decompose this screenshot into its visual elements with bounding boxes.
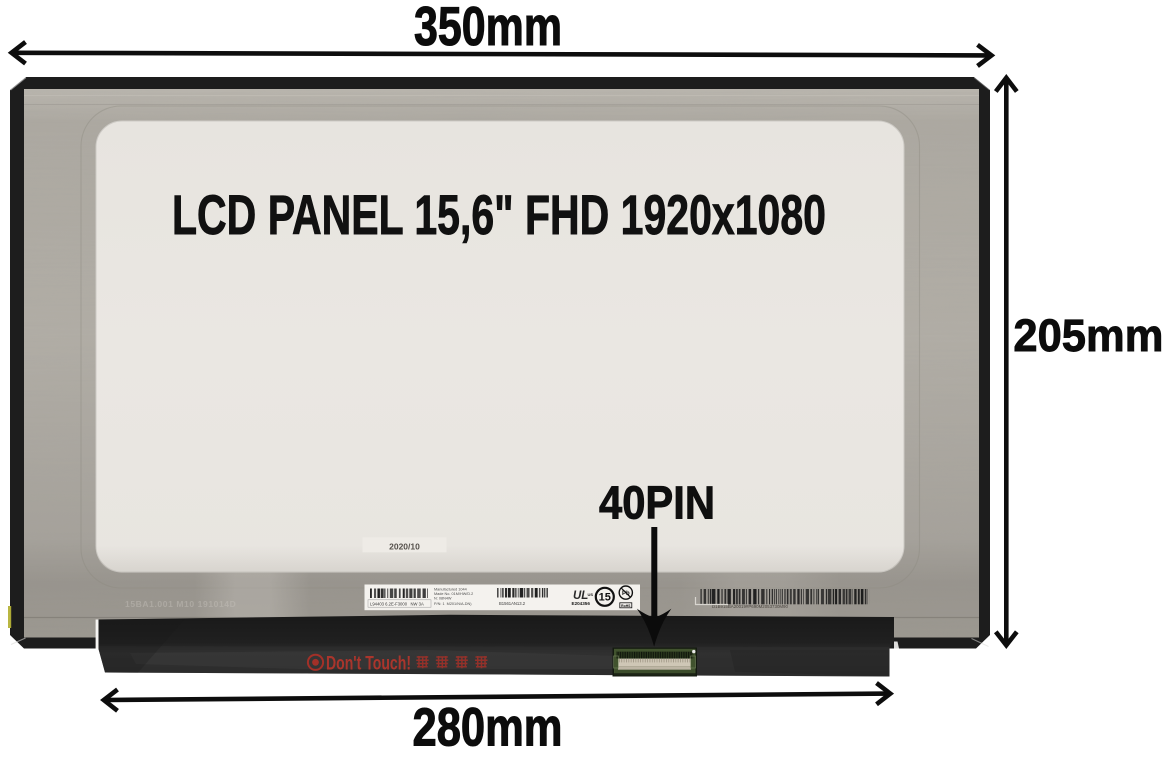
- svg-text:40PIN: 40PIN: [599, 477, 715, 529]
- svg-text:Made No. 01M/HW/D.2: Made No. 01M/HW/D.2: [434, 592, 473, 596]
- svg-text:B1561AN13.2: B1561AN13.2: [499, 601, 526, 606]
- svg-text:N: 08N4W: N: 08N4W: [434, 597, 452, 601]
- svg-text:350mm: 350mm: [414, 0, 562, 57]
- svg-text:2020/10: 2020/10: [389, 542, 420, 552]
- svg-text:RoHS: RoHS: [621, 604, 631, 608]
- svg-text:280mm: 280mm: [413, 699, 563, 756]
- svg-text:LCD PANEL 15,6" FHD 1920x1080: LCD PANEL 15,6" FHD 1920x1080: [172, 183, 826, 246]
- svg-text:Don't Touch!: Don't Touch!: [326, 653, 411, 674]
- svg-text:15BA1.001 M10 191014D: 15BA1.001 M10 191014D: [125, 599, 236, 609]
- svg-text:E204356: E204356: [572, 601, 591, 606]
- svg-text:Manufactured 1044: Manufactured 1044: [434, 588, 467, 592]
- svg-text:205mm: 205mm: [1013, 310, 1163, 361]
- svg-text:L94403 6.2E-F3000 NW 3A: L94403 6.2E-F3000 NW 3A: [370, 601, 424, 606]
- svg-text:US: US: [588, 592, 594, 597]
- svg-text:15: 15: [599, 592, 611, 604]
- svg-text:P/N: 1 M201/N/A-DN): P/N: 1 M201/N/A-DN): [434, 602, 472, 606]
